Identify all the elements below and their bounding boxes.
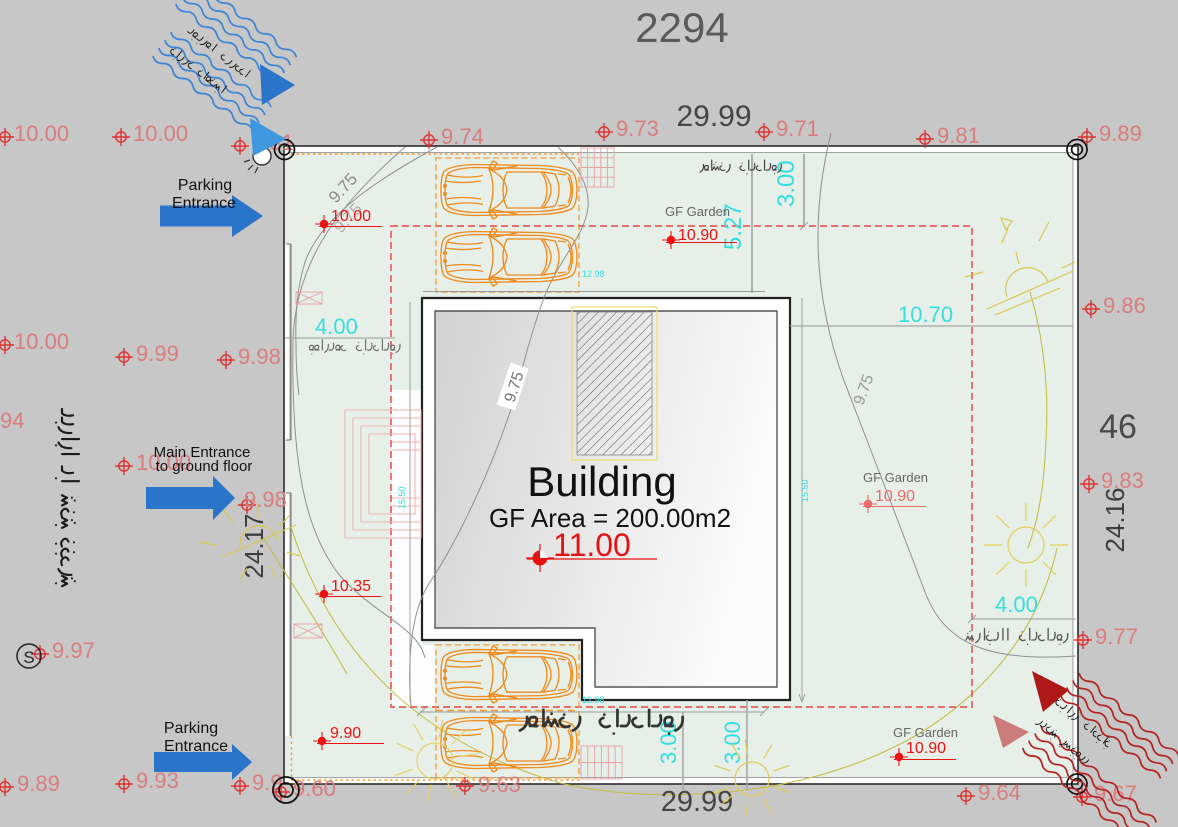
svg-text:GF Garden: GF Garden xyxy=(893,725,958,740)
svg-text:10.70: 10.70 xyxy=(898,302,953,327)
svg-text:10.00: 10.00 xyxy=(133,121,188,146)
svg-text:12.98: 12.98 xyxy=(582,695,605,705)
svg-text:29.99: 29.99 xyxy=(676,100,751,133)
svg-text:15.50: 15.50 xyxy=(800,479,810,502)
svg-text:9.98: 9.98 xyxy=(244,487,287,512)
svg-text:Parking: Parking xyxy=(178,177,232,194)
svg-text:GF Garden: GF Garden xyxy=(665,204,730,219)
svg-text:9.81: 9.81 xyxy=(937,123,980,148)
svg-text:11.00: 11.00 xyxy=(553,527,631,563)
svg-text:4.00: 4.00 xyxy=(995,592,1038,617)
svg-text:Building: Building xyxy=(527,458,676,505)
svg-text:9.98: 9.98 xyxy=(238,344,281,369)
svg-text:9.71: 9.71 xyxy=(776,116,819,141)
svg-text:9.9: 9.9 xyxy=(252,770,283,795)
svg-text:10.00: 10.00 xyxy=(14,121,69,146)
svg-text:9.77: 9.77 xyxy=(1095,624,1138,649)
svg-text:15.50: 15.50 xyxy=(397,486,407,509)
svg-text:9.86: 9.86 xyxy=(1103,293,1146,318)
svg-text:10.00: 10.00 xyxy=(14,329,69,354)
svg-text:Parking: Parking xyxy=(164,720,218,737)
svg-text:3.00: 3.00 xyxy=(656,721,681,764)
svg-text:Entrance: Entrance xyxy=(172,195,236,212)
svg-text:9.89: 9.89 xyxy=(1099,121,1142,146)
svg-text:10.90: 10.90 xyxy=(906,740,946,757)
svg-text:9.90: 9.90 xyxy=(330,725,361,742)
svg-text:3.00: 3.00 xyxy=(720,721,745,764)
svg-text:9.73: 9.73 xyxy=(616,116,659,141)
svg-text:3.00: 3.00 xyxy=(773,160,800,207)
svg-text:2294: 2294 xyxy=(635,4,728,51)
svg-text:24.17: 24.17 xyxy=(239,513,269,578)
svg-text:94: 94 xyxy=(0,408,24,433)
svg-text:GF Garden: GF Garden xyxy=(863,470,928,485)
svg-text:46: 46 xyxy=(1099,408,1137,446)
svg-text:24.16: 24.16 xyxy=(1100,487,1130,552)
svg-text:to ground floor: to ground floor xyxy=(156,458,253,475)
svg-text:10.35: 10.35 xyxy=(331,578,371,595)
svg-text:9.97: 9.97 xyxy=(52,638,95,663)
svg-text:9.63: 9.63 xyxy=(478,772,521,797)
svg-text:4.00: 4.00 xyxy=(315,314,358,339)
svg-text:9.74: 9.74 xyxy=(441,124,484,149)
svg-text:S: S xyxy=(23,648,34,667)
svg-text:10.00: 10.00 xyxy=(331,208,371,225)
svg-text:12.98: 12.98 xyxy=(582,269,605,279)
svg-text:10.90: 10.90 xyxy=(678,227,718,244)
svg-text:Entrance: Entrance xyxy=(164,738,228,755)
svg-text:9.99: 9.99 xyxy=(136,341,179,366)
svg-text:9.64: 9.64 xyxy=(978,780,1021,805)
svg-text:9.89: 9.89 xyxy=(17,771,60,796)
svg-text:10.90: 10.90 xyxy=(875,488,915,505)
svg-text:29.99: 29.99 xyxy=(661,786,734,818)
